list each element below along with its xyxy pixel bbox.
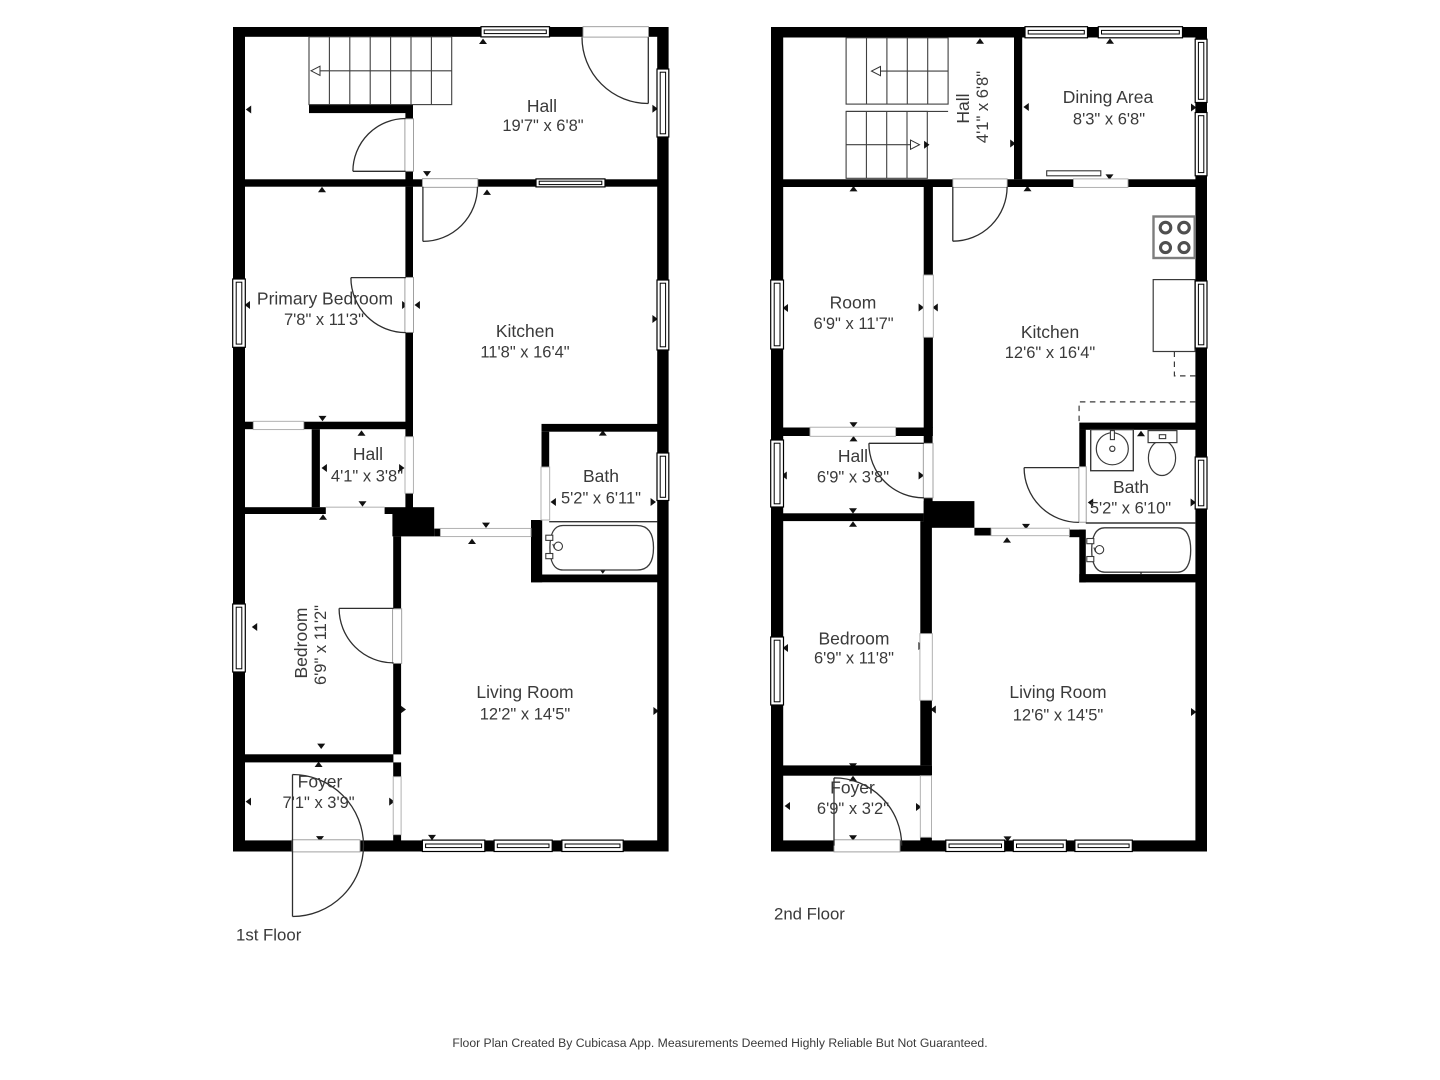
svg-text:Room: Room [830,293,877,313]
svg-text:12'6" x 16'4": 12'6" x 16'4" [1005,344,1096,362]
svg-text:6'9" x 3'2": 6'9" x 3'2" [817,800,889,818]
svg-text:Kitchen: Kitchen [1021,322,1079,342]
svg-text:Bedroom: Bedroom [818,629,889,649]
svg-text:7'1" x 3'9": 7'1" x 3'9" [283,794,355,812]
svg-text:Hall: Hall [953,93,973,123]
svg-text:6'9" x 3'8": 6'9" x 3'8" [817,469,889,487]
svg-text:Hall: Hall [838,446,868,466]
svg-text:5'2" x 6'10": 5'2" x 6'10" [1090,500,1171,518]
svg-text:12'6" x 14'5": 12'6" x 14'5" [1013,707,1104,725]
svg-text:6'9" x 11'8": 6'9" x 11'8" [814,650,894,668]
svg-text:Bedroom: Bedroom [291,607,311,678]
svg-text:5'2" x 6'11": 5'2" x 6'11" [561,490,641,508]
svg-text:Living Room: Living Room [476,682,573,702]
svg-text:Primary Bedroom: Primary Bedroom [257,289,393,309]
svg-text:2nd Floor: 2nd Floor [774,905,845,924]
svg-text:7'8" x 11'3": 7'8" x 11'3" [284,311,364,329]
svg-text:Bath: Bath [1113,477,1149,497]
svg-text:Foyer: Foyer [830,778,875,798]
svg-text:Kitchen: Kitchen [496,321,554,341]
svg-text:6'9" x 11'2": 6'9" x 11'2" [312,605,330,685]
svg-text:Bath: Bath [583,466,619,486]
svg-text:8'3" x 6'8": 8'3" x 6'8" [1073,111,1145,129]
svg-text:Dining Area: Dining Area [1063,87,1154,107]
svg-text:1st Floor: 1st Floor [236,926,302,945]
svg-text:Living Room: Living Room [1009,682,1106,702]
svg-text:Foyer: Foyer [298,772,343,792]
svg-text:Hall: Hall [353,444,383,464]
svg-text:Floor Plan Created By Cubicasa: Floor Plan Created By Cubicasa App. Meas… [452,1036,987,1050]
svg-text:19'7" x 6'8": 19'7" x 6'8" [502,117,583,135]
svg-text:Hall: Hall [527,96,557,116]
svg-text:6'9" x 11'7": 6'9" x 11'7" [814,315,894,333]
svg-text:4'1" x 6'8": 4'1" x 6'8" [974,71,992,143]
svg-text:11'8" x 16'4": 11'8" x 16'4" [480,344,569,362]
svg-text:12'2" x 14'5": 12'2" x 14'5" [480,706,571,724]
svg-text:4'1" x 3'8": 4'1" x 3'8" [331,468,403,486]
